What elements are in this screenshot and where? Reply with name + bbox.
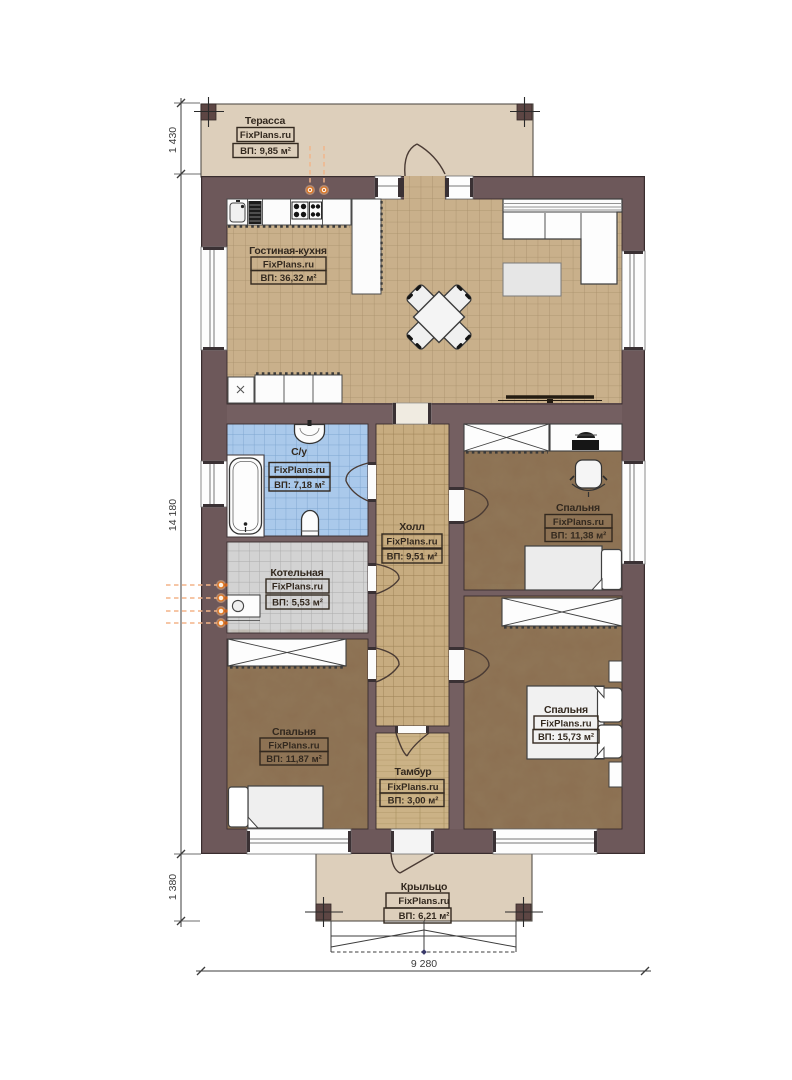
- svg-text:FixPlans.ru: FixPlans.ru: [398, 896, 449, 907]
- svg-text:ВП: 9,51 м²: ВП: 9,51 м²: [387, 552, 438, 563]
- svg-text:Гостиная-кухня: Гостиная-кухня: [249, 245, 327, 257]
- svg-text:1 430: 1 430: [167, 127, 179, 153]
- svg-text:Спальня: Спальня: [544, 704, 588, 716]
- svg-text:ВП: 3,00 м²: ВП: 3,00 м²: [388, 796, 439, 807]
- svg-text:ВП: 11,38 м²: ВП: 11,38 м²: [551, 531, 607, 542]
- svg-text:Терасса: Терасса: [245, 115, 286, 127]
- svg-text:9 280: 9 280: [411, 958, 437, 970]
- svg-text:ВП: 6,21 м²: ВП: 6,21 м²: [399, 911, 450, 922]
- svg-text:FixPlans.ru: FixPlans.ru: [268, 741, 319, 752]
- svg-text:ВП: 9,85 м²: ВП: 9,85 м²: [240, 146, 291, 157]
- svg-text:14 180: 14 180: [167, 499, 179, 531]
- svg-text:FixPlans.ru: FixPlans.ru: [540, 719, 591, 730]
- svg-text:ВП: 36,32 м²: ВП: 36,32 м²: [260, 273, 316, 284]
- svg-text:С/у: С/у: [291, 446, 307, 458]
- svg-text:ВП: 5,53 м²: ВП: 5,53 м²: [272, 598, 323, 609]
- svg-text:Спальня: Спальня: [556, 502, 600, 514]
- svg-text:FixPlans.ru: FixPlans.ru: [387, 782, 438, 793]
- svg-text:FixPlans.ru: FixPlans.ru: [240, 130, 291, 141]
- svg-text:FixPlans.ru: FixPlans.ru: [553, 517, 604, 528]
- svg-text:Котельная: Котельная: [270, 567, 323, 579]
- svg-text:FixPlans.ru: FixPlans.ru: [272, 582, 323, 593]
- svg-text:Холл: Холл: [399, 521, 425, 533]
- svg-text:FixPlans.ru: FixPlans.ru: [263, 260, 314, 271]
- svg-text:FixPlans.ru: FixPlans.ru: [274, 465, 325, 476]
- svg-text:FixPlans.ru: FixPlans.ru: [386, 537, 437, 548]
- svg-text:ВП: 11,87 м²: ВП: 11,87 м²: [266, 754, 322, 765]
- svg-text:Крыльцо: Крыльцо: [401, 881, 447, 893]
- svg-text:ВП: 7,18 м²: ВП: 7,18 м²: [274, 480, 325, 491]
- svg-text:ВП: 15,73 м²: ВП: 15,73 м²: [538, 732, 594, 743]
- svg-text:1 380: 1 380: [167, 874, 179, 900]
- svg-text:Спальня: Спальня: [272, 726, 316, 738]
- svg-text:Тамбур: Тамбур: [395, 766, 432, 778]
